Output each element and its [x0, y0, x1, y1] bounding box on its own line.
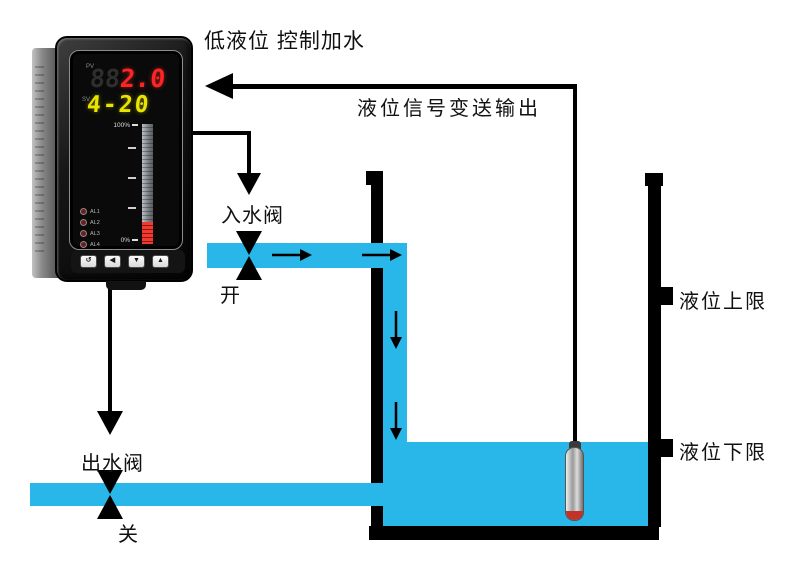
- panel-clip: [106, 281, 146, 290]
- inlet-control-line: [247, 131, 251, 175]
- outlet-valve-icon: [97, 495, 123, 519]
- pv-ghost-digits: 88: [89, 64, 122, 93]
- led-icon: [80, 208, 87, 215]
- shift-left-button[interactable]: ◀: [104, 255, 121, 268]
- level-probe: [565, 447, 584, 521]
- upper-limit-marker: [659, 287, 673, 305]
- tank-left-wall: [371, 171, 383, 527]
- inlet-valve-label: 入水阀: [221, 199, 284, 228]
- inlet-valve-state: 开: [220, 279, 240, 308]
- tick-icon: [132, 124, 138, 126]
- lower-limit-marker: [659, 439, 673, 457]
- outlet-pipe: [30, 483, 383, 506]
- led-icon: [80, 230, 87, 237]
- signal-line-label: 液位信号变送输出: [357, 92, 541, 121]
- loop-button[interactable]: ↺: [80, 255, 97, 268]
- pv-value: 2.0: [119, 64, 167, 93]
- controller-display: PV 882.0 SV 4-20 100% 0% AL1 AL2 AL3 AL4: [69, 50, 183, 250]
- inlet-control-line: [190, 131, 251, 135]
- alarm-led-al1: AL1: [80, 208, 100, 217]
- led-icon: [80, 219, 87, 226]
- outlet-control-arrowhead-icon: [97, 411, 123, 435]
- flow-arrow-down-icon: [389, 402, 403, 440]
- alarm-led-al4: AL4: [80, 241, 100, 250]
- flow-arrow-right-icon: [272, 248, 312, 262]
- alarm-led-al3: AL3: [80, 230, 100, 239]
- inlet-valve-icon: [236, 231, 262, 255]
- outlet-valve-state: 关: [118, 518, 138, 547]
- signal-line: [228, 84, 577, 89]
- bargraph-red-level: [142, 222, 153, 244]
- flow-arrow-right-icon: [362, 248, 402, 262]
- outlet-control-line: [108, 284, 112, 412]
- flow-arrow-down-icon: [389, 311, 403, 349]
- tick-icon: [132, 239, 138, 241]
- upper-limit-label: 液位上限: [679, 285, 767, 314]
- alarm-led-al2: AL2: [80, 219, 100, 228]
- pv-display: 882.0: [89, 66, 166, 91]
- tank-bottom-wall: [369, 526, 659, 540]
- diagram-title: 低液位 控制加水: [204, 25, 365, 55]
- sv-value: 4-20: [86, 92, 152, 118]
- probe-cable: [573, 84, 577, 447]
- level-control-diagram: 液位上限 液位下限 入水阀 开 出水阀 关 液位信号变送输出: [0, 0, 790, 566]
- bargraph-track: [142, 124, 153, 244]
- tick-icon: [128, 177, 136, 179]
- lower-limit-label: 液位下限: [679, 436, 767, 465]
- outlet-valve-label: 出水阀: [81, 447, 144, 476]
- tank-water: [383, 442, 648, 526]
- bargraph-100-label: 100%: [100, 122, 138, 129]
- inlet-valve-icon: [236, 256, 262, 280]
- signal-arrowhead-icon: [205, 73, 233, 99]
- sv-display: 4-20: [86, 94, 151, 117]
- probe-tip: [566, 511, 583, 520]
- up-button[interactable]: ▲: [152, 255, 169, 268]
- tick-icon: [128, 147, 136, 149]
- tank-right-wall: [648, 173, 661, 527]
- led-icon: [80, 241, 87, 248]
- inlet-control-arrowhead-icon: [237, 173, 261, 195]
- down-button[interactable]: ▼: [128, 255, 145, 268]
- bargraph-0-label: 0%: [100, 237, 138, 244]
- tick-icon: [128, 207, 136, 209]
- vent-slots: [35, 66, 44, 256]
